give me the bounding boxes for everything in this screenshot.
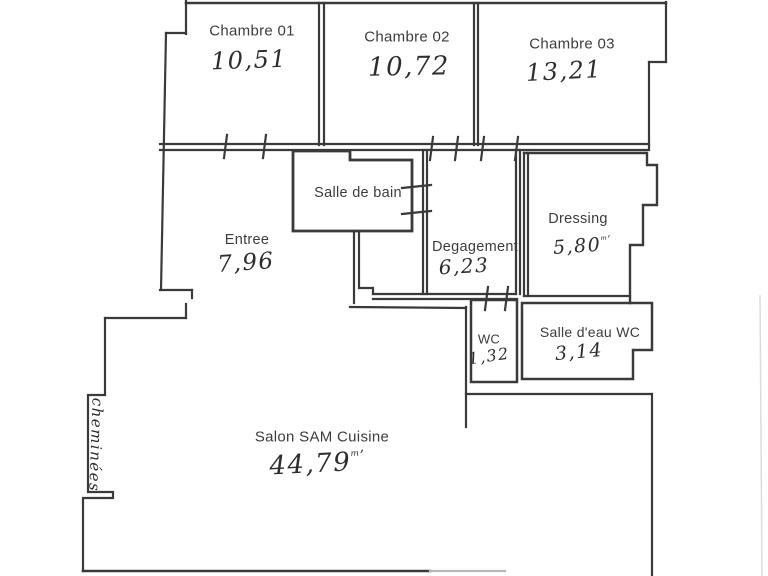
room-label-dressing: Dressing <box>548 211 608 227</box>
room-area-degagement: 6,23 <box>438 253 490 280</box>
room-label-chambre-02: Chambre 02 <box>364 29 450 46</box>
room-label-chambre-03: Chambre 03 <box>529 36 615 53</box>
room-label-entree: Entree <box>225 232 270 248</box>
floorplan-page: Chambre 01 10,51 Chambre 02 10,72 Chambr… <box>0 0 768 576</box>
wall-left-entree <box>161 33 166 290</box>
floorplan-walls <box>0 0 768 576</box>
room-area-chambre-02: 10,72 <box>368 51 450 82</box>
room-area-salon: 44,79ᵐ’ <box>269 447 366 482</box>
room-area-chambre-01: 10,51 <box>210 45 287 76</box>
room-area-entree: 7,96 <box>217 248 276 278</box>
room-label-salon: Salon SAM Cuisine <box>255 429 389 446</box>
room-area-dressing: 5,80ᵐ’ <box>552 233 611 259</box>
annotation-cheminee: cheminées <box>85 397 106 492</box>
room-label-salle-deau-wc: Salle d'eau WC <box>540 324 640 340</box>
room-area-salle-deau-wc: 3,14 <box>554 339 604 365</box>
room-area-chambre-03: 13,21 <box>525 55 603 87</box>
room-label-chambre-01: Chambre 01 <box>209 23 295 40</box>
room-label-salle-de-bain: Salle de bain <box>314 185 402 201</box>
wall-dressing <box>524 153 657 303</box>
